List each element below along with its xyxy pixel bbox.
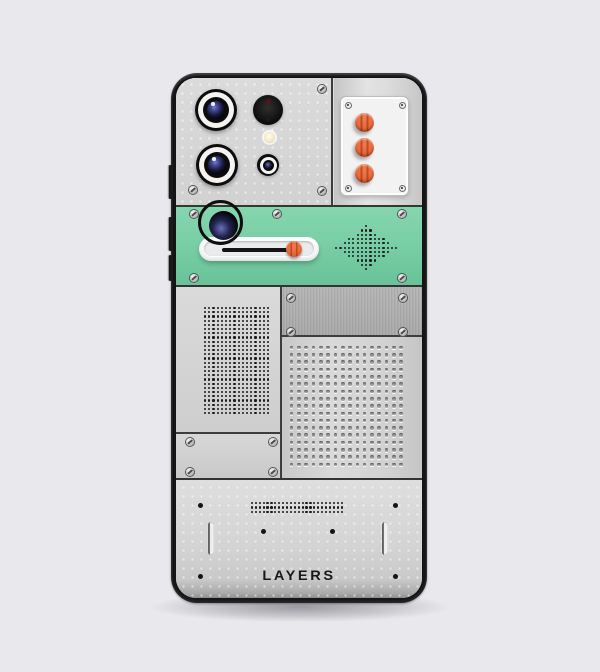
volume-up-button <box>169 165 172 199</box>
phone-back-frame: LAYERS <box>171 73 427 603</box>
center-dot <box>330 529 335 534</box>
lens-glass <box>207 101 225 119</box>
power-button <box>169 255 172 281</box>
left-speaker-grille <box>203 306 270 415</box>
lens-glint <box>212 157 216 161</box>
periscope-camera-ring <box>198 200 243 245</box>
corner-dot <box>198 503 203 508</box>
orange-knob[interactable] <box>355 164 374 183</box>
product-image-background: LAYERS <box>0 0 600 672</box>
brand-wordmark: LAYERS <box>176 567 422 583</box>
left-vent-slot <box>208 522 214 555</box>
sensor-lower-dot <box>265 115 271 121</box>
main-camera-lens <box>195 89 237 131</box>
screw-icon <box>400 186 405 191</box>
lens-glass <box>208 156 226 174</box>
screw-icon <box>399 294 407 302</box>
phone-skin: LAYERS <box>176 78 422 598</box>
screw-icon <box>287 328 295 336</box>
screw-icon <box>318 85 326 93</box>
lens-glint <box>211 102 215 106</box>
diamond-speaker-grille <box>334 224 399 271</box>
screw-icon <box>399 328 407 336</box>
corner-dot <box>393 503 398 508</box>
depth-sensor <box>253 95 283 125</box>
screw-icon <box>269 468 277 476</box>
screw-icon <box>400 103 405 108</box>
screw-icon <box>190 274 198 282</box>
orange-knob[interactable] <box>355 138 374 157</box>
lens-glass <box>265 162 272 169</box>
screw-icon <box>398 210 406 218</box>
orange-knob[interactable] <box>355 113 374 132</box>
sensor-red-dot <box>266 99 271 104</box>
screw-icon <box>269 438 277 446</box>
bottom-mic-grille <box>250 501 344 514</box>
periscope-camera-lens <box>209 211 238 240</box>
center-dot <box>261 529 266 534</box>
perforated-grille <box>288 344 405 468</box>
screw-icon <box>189 186 197 194</box>
screw-icon <box>186 438 194 446</box>
control-plate <box>340 96 409 196</box>
flash-led <box>264 132 275 143</box>
screw-icon <box>346 186 351 191</box>
telephoto-camera-lens <box>257 154 279 176</box>
screw-icon <box>318 187 326 195</box>
screw-icon <box>273 210 281 218</box>
screw-icon <box>186 468 194 476</box>
screw-icon <box>287 294 295 302</box>
ultrawide-camera-lens <box>196 144 238 186</box>
right-vent-slot <box>382 522 388 555</box>
screw-icon <box>398 274 406 282</box>
screw-icon <box>190 210 198 218</box>
screw-icon <box>346 103 351 108</box>
volume-down-button <box>169 217 172 251</box>
